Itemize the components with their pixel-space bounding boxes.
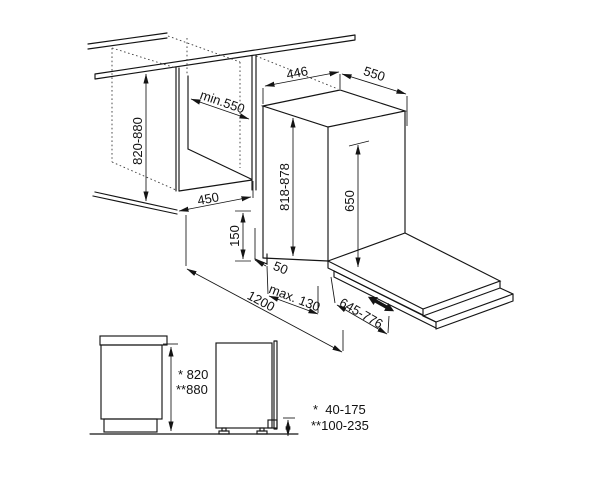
niche-depth-label: min.550 (198, 87, 247, 116)
dim-appliance-height: 818-878 (277, 118, 293, 256)
front-offset-label: 50 (271, 258, 290, 277)
appliance-feet (219, 428, 267, 434)
dim-plinth-height: 150 (227, 211, 251, 261)
adjustment-legend: * 40-175 **100-235 (311, 402, 369, 433)
door-open-reach-label: 645-776 (337, 295, 386, 332)
plinth-height-label: 150 (227, 225, 242, 247)
dim-appliance-depth: 550 (342, 63, 407, 126)
cabinet-side-view (100, 336, 167, 432)
height-dimension-side: * 820 **880 (163, 344, 208, 431)
installation-diagram-page: 820-880 min.550 450 446 550 818-878 650 … (0, 0, 600, 480)
cabinet-height-label-2: **880 (176, 382, 208, 397)
niche-height-label: 820-880 (130, 117, 145, 165)
niche-opening (176, 55, 256, 191)
cabinet-plinth (104, 419, 157, 432)
toe-kick-depth-label: max. 130 (267, 281, 322, 314)
legend-line-1: * 40-175 (313, 402, 366, 417)
dim-service-clearance: 1200 (186, 215, 343, 352)
appliance-door-panel (274, 341, 277, 429)
niche-width-label: 450 (196, 189, 220, 208)
appliance-top-face (263, 90, 405, 127)
installation-diagram: 820-880 min.550 450 446 550 818-878 650 … (0, 0, 600, 480)
foot-adjust-dimension (283, 418, 295, 436)
dim-niche-height: 820-880 (130, 74, 146, 201)
legend-line-2: **100-235 (311, 418, 369, 433)
appliance-side-view (216, 341, 277, 434)
counter-unit (88, 33, 355, 214)
appliance-height-label: 818-878 (277, 163, 292, 211)
tub-height-label: 650 (342, 190, 357, 212)
appliance-width-label: 446 (285, 63, 309, 82)
floor-edge-lines (93, 192, 177, 214)
appliance-side-body (216, 343, 272, 428)
cabinet-height-label-1: * 820 (178, 367, 208, 382)
cabinet-countertop (100, 336, 167, 345)
cabinet-body (101, 345, 162, 419)
